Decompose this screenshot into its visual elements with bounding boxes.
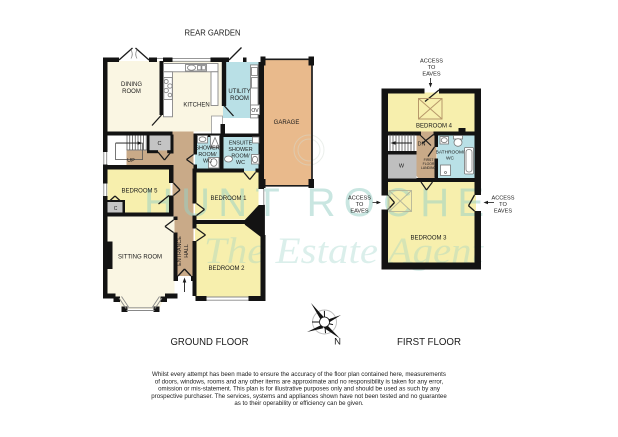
svg-text:UTILITY: UTILITY [228, 89, 250, 95]
svg-text:SITTING ROOM: SITTING ROOM [118, 255, 162, 261]
svg-text:ACCESS: ACCESS [420, 59, 443, 65]
svg-text:DINING: DINING [121, 82, 142, 88]
svg-text:TO: TO [499, 202, 507, 208]
svg-text:BEDROOM 2: BEDROOM 2 [208, 266, 245, 272]
svg-text:ENSUITE: ENSUITE [229, 141, 253, 147]
svg-text:REAR GARDEN: REAR GARDEN [185, 29, 241, 38]
svg-text:TO: TO [356, 202, 364, 208]
svg-text:LANDING: LANDING [421, 166, 436, 170]
svg-text:ROOM: ROOM [122, 89, 141, 95]
svg-text:EAVES: EAVES [494, 209, 513, 215]
svg-text:ACCESS: ACCESS [491, 196, 514, 202]
svg-text:Whilst every attempt has been: Whilst every attempt has been made to en… [152, 371, 446, 378]
svg-text:EAVES: EAVES [350, 209, 369, 215]
svg-text:FIRST FLOOR: FIRST FLOOR [397, 337, 461, 348]
svg-text:N: N [334, 337, 341, 348]
svg-text:KITCHEN: KITCHEN [183, 103, 209, 109]
svg-text:BEDROOM 1: BEDROOM 1 [210, 196, 247, 202]
svg-text:SHOWER: SHOWER [228, 147, 252, 153]
svg-text:of doors, windows, rooms and a: of doors, windows, rooms and any other i… [155, 378, 444, 385]
svg-text:TO: TO [428, 65, 436, 71]
svg-text:WC: WC [203, 159, 212, 165]
svg-text:W: W [399, 164, 405, 170]
svg-text:BEDROOM 3: BEDROOM 3 [410, 236, 447, 242]
svg-text:ENTRANCE: ENTRANCE [177, 236, 183, 266]
svg-text:ACCESS: ACCESS [348, 196, 371, 202]
svg-text:BATHROOM/: BATHROOM/ [436, 150, 465, 156]
svg-text:C: C [114, 206, 118, 212]
svg-text:SHOWER: SHOWER [195, 146, 219, 152]
svg-text:ROOM/: ROOM/ [231, 154, 250, 160]
svg-text:prospective purchaser. The ser: prospective purchaser. The services, sys… [151, 393, 447, 400]
svg-text:OV: OV [251, 108, 259, 114]
svg-text:WC: WC [446, 156, 455, 162]
svg-text:GROUND FLOOR: GROUND FLOOR [171, 337, 249, 348]
svg-text:C: C [158, 141, 162, 147]
svg-text:as to their operability or eff: as to their operability or efficiency ca… [234, 400, 364, 407]
svg-text:ROOM: ROOM [230, 96, 249, 102]
svg-text:UP: UP [127, 158, 135, 164]
svg-text:DN: DN [418, 142, 426, 148]
svg-text:HALL: HALL [184, 244, 190, 258]
svg-text:EAVES: EAVES [422, 72, 441, 78]
svg-text:BEDROOM 5: BEDROOM 5 [121, 189, 158, 195]
svg-text:WC: WC [236, 160, 245, 166]
svg-text:ROOM/: ROOM/ [198, 152, 217, 158]
svg-text:BEDROOM 4: BEDROOM 4 [416, 124, 453, 130]
svg-text:omission or mis-statement. Thi: omission or mis-statement. This plan is … [158, 386, 441, 393]
svg-text:GARAGE: GARAGE [274, 120, 300, 126]
